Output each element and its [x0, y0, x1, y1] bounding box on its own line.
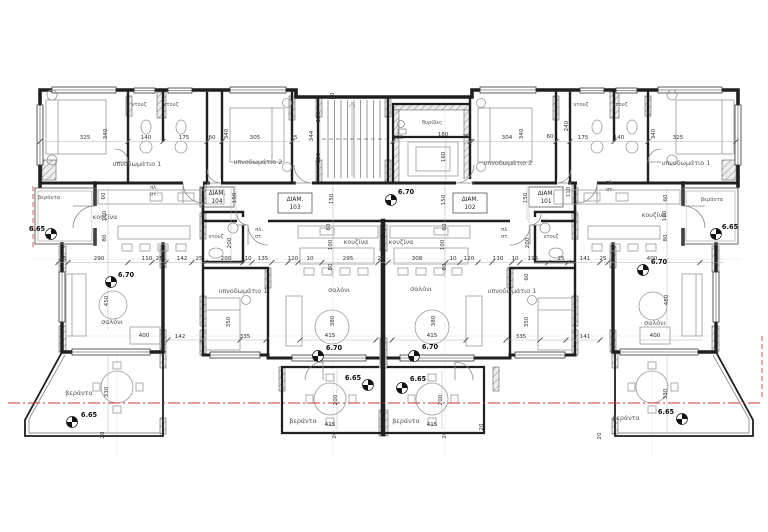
floor-plan-page: 6.706.706.706.706.706.656.656.656.656.65…	[0, 0, 768, 532]
dim-label: 240	[564, 120, 570, 131]
dim-label: 305	[250, 135, 261, 141]
dim-label: 200	[333, 394, 339, 405]
dim-label: 60	[101, 192, 107, 200]
dim-label: 80	[663, 234, 669, 242]
dim-label: 135	[258, 256, 269, 262]
dim-label: 325	[80, 135, 91, 141]
room-label: υπνοδωμάτιο 2	[234, 158, 283, 166]
dim-label: 450	[664, 294, 670, 305]
level-marker: 6.70	[386, 188, 415, 206]
elevator	[398, 121, 459, 177]
dim-label: 150	[523, 192, 529, 203]
level-value: 6.65	[81, 411, 98, 419]
room-label: σαλόνι	[101, 318, 123, 326]
dim-label: 60	[326, 223, 332, 231]
dim-label: 400	[139, 333, 150, 339]
dim-label: 141	[580, 334, 591, 340]
dim-label: 60	[524, 273, 530, 281]
dim-label: 344	[309, 130, 315, 141]
apartment-boxes	[200, 187, 563, 213]
dim-label: 160	[441, 151, 447, 162]
staircase	[322, 100, 386, 178]
dim-label: 80	[102, 234, 108, 242]
dim-label: 10	[306, 256, 314, 262]
room-label: βεράντα	[612, 414, 639, 422]
dim-label: 200	[227, 237, 233, 248]
dim-label: 25	[195, 256, 203, 262]
level-marker: 6.65	[658, 408, 688, 425]
level-value: 6.65	[722, 223, 739, 231]
room-label: σαλόνι	[328, 286, 350, 294]
dim-label: 325	[673, 135, 684, 141]
dim-label: 380	[431, 315, 437, 326]
apt-label: 103	[289, 205, 300, 211]
dim-label: 200	[525, 237, 531, 248]
dim-label: 25	[155, 256, 163, 262]
dim-label: 180	[393, 135, 404, 141]
dim-label: 20	[479, 423, 485, 431]
room-label: σαλόνι	[410, 285, 432, 293]
dim-label: 200	[221, 256, 232, 262]
small-label: θυρίδες	[422, 119, 442, 126]
dim-label: 340	[103, 128, 109, 139]
dim-label: 335	[516, 334, 527, 340]
apt-label: ΔΙΑΜ.	[538, 191, 555, 197]
dim-label: 60	[208, 135, 216, 141]
small-label: πλ.	[501, 227, 509, 233]
level-value: 6.70	[326, 344, 343, 352]
dim-label: 340	[519, 128, 525, 139]
dim-label: 290	[94, 256, 105, 262]
room-label: υπνοδωμάτιο 1	[488, 287, 537, 295]
small-label: ντουζ	[573, 102, 588, 108]
room-label: υπνοδωμάτιο 1	[219, 287, 268, 295]
small-label: βεράντα	[38, 194, 61, 201]
dim-label: 60	[546, 134, 554, 140]
dim-label: 25	[599, 256, 607, 262]
dim-label: 335	[240, 334, 251, 340]
dim-label: 10	[449, 256, 457, 262]
dim-label: 100	[440, 239, 446, 250]
dim-label: 140	[141, 135, 152, 141]
dim-label: 400	[650, 333, 661, 339]
dim-label: 175	[578, 135, 589, 141]
room-label: υπνοδωμάτιο 1	[113, 160, 162, 168]
dim-label: 20	[597, 432, 603, 440]
small-label: στ.	[150, 192, 158, 198]
dim-label: 175	[179, 135, 190, 141]
dim-label: 295	[343, 256, 354, 262]
dim-label: 25	[462, 134, 470, 140]
small-label: πλ.	[255, 227, 263, 233]
room-label: υπνοδωμάτιο 1	[662, 159, 711, 167]
walls	[25, 90, 753, 436]
dim-label: 80	[442, 263, 448, 271]
dim-label: 304	[502, 135, 513, 141]
apt-label: 101	[540, 199, 551, 205]
apt-label: ΔΙΑΜ.	[462, 197, 479, 203]
level-value: 6.65	[658, 408, 675, 416]
apt-label: ΔΙΑΜ.	[209, 191, 226, 197]
dim-label: 150	[329, 193, 335, 204]
dim-label: 100	[328, 239, 334, 250]
small-label: ντουζ	[131, 102, 146, 108]
dim-label: 25	[377, 256, 385, 262]
dim-label: 200	[438, 394, 444, 405]
floor-plan-svg: 6.706.706.706.706.706.656.656.656.656.65…	[0, 0, 768, 532]
dim-label: 350	[524, 316, 530, 327]
dim-label: 110	[142, 256, 153, 262]
dim-label: 415	[325, 333, 336, 339]
dim-label: 380	[330, 315, 336, 326]
level-value: 6.65	[410, 375, 427, 383]
level-marker: 6.70	[106, 271, 135, 288]
dim-label: 60	[663, 194, 669, 202]
dim-label: 308	[412, 256, 423, 262]
dim-label: 142	[177, 256, 188, 262]
dim-label: 100	[102, 210, 108, 221]
dim-label: 20	[100, 431, 106, 439]
room-label: υπνοδωμάτιο 2	[484, 159, 533, 167]
dim-label: 142	[175, 334, 186, 340]
room-label: βεράντα	[65, 389, 92, 397]
dim-label: 100	[662, 210, 668, 221]
room-label: βεράντα	[392, 417, 419, 425]
dim-label: 60	[442, 223, 448, 231]
dim-label: 150	[232, 192, 238, 203]
small-label: βεράντα	[701, 196, 724, 203]
dim-label: 195	[528, 256, 539, 262]
dim-label: 120	[316, 111, 322, 122]
dim-label: 130	[493, 256, 504, 262]
dim-label: 350	[226, 316, 232, 327]
level-value: 6.70	[398, 188, 415, 196]
dim-label: 330	[663, 388, 669, 399]
dim-label: 330	[104, 386, 110, 397]
apt-label: 104	[211, 199, 222, 205]
level-marker: 6.65	[345, 374, 374, 391]
level-marker: 6.65	[711, 223, 739, 240]
dim-label: 450	[104, 295, 110, 306]
dim-label: 80	[330, 92, 336, 100]
dim-label: 340	[224, 128, 230, 139]
dim-label: 141	[580, 256, 591, 262]
small-label: στ.	[255, 234, 263, 240]
dim-label: 120	[316, 152, 322, 163]
dim-label: 20	[332, 431, 338, 439]
small-label: ντουζ	[208, 234, 223, 240]
room-label: κουζίνα	[389, 238, 414, 246]
small-label: πλ.	[150, 185, 158, 191]
level-value: 6.65	[29, 225, 46, 233]
dim-label: 110	[566, 186, 572, 197]
dim-label: 25	[557, 256, 565, 262]
level-value: 6.65	[345, 374, 362, 382]
dim-label: 120	[288, 256, 299, 262]
dim-label: 120	[464, 256, 475, 262]
dim-label: 415	[325, 422, 336, 428]
small-label: ντουζ	[543, 234, 558, 240]
level-marker: 6.65	[397, 375, 427, 394]
dim-label: 10	[511, 256, 519, 262]
small-label: ντουζ	[163, 102, 178, 108]
dim-label: 340	[651, 128, 657, 139]
dim-label: 150	[441, 194, 447, 205]
level-value: 6.70	[118, 271, 135, 279]
dim-label: 400	[647, 256, 658, 262]
dim-label: 25	[59, 256, 67, 262]
dim-label: 180	[438, 132, 449, 138]
room-label: κουζίνα	[344, 238, 369, 246]
small-label: στ.	[501, 234, 509, 240]
dim-label: 10	[244, 256, 252, 262]
level-value: 6.70	[422, 343, 439, 351]
dim-label: 140	[614, 135, 625, 141]
dim-label: 80	[328, 263, 334, 271]
small-label: πλ.	[606, 180, 614, 186]
dim-label: 20	[442, 431, 448, 439]
dim-label: 415	[427, 333, 438, 339]
room-label: σαλόνι	[644, 319, 666, 327]
apt-label: ΔΙΑΜ.	[287, 197, 304, 203]
level-marker: 6.65	[67, 411, 98, 428]
dim-label: 415	[427, 422, 438, 428]
small-label: ντουζ	[612, 102, 627, 108]
dim-label: 25	[290, 135, 298, 141]
room-label: βεράντα	[289, 417, 316, 425]
apt-label: 102	[464, 205, 475, 211]
small-label: στ.	[606, 187, 614, 193]
